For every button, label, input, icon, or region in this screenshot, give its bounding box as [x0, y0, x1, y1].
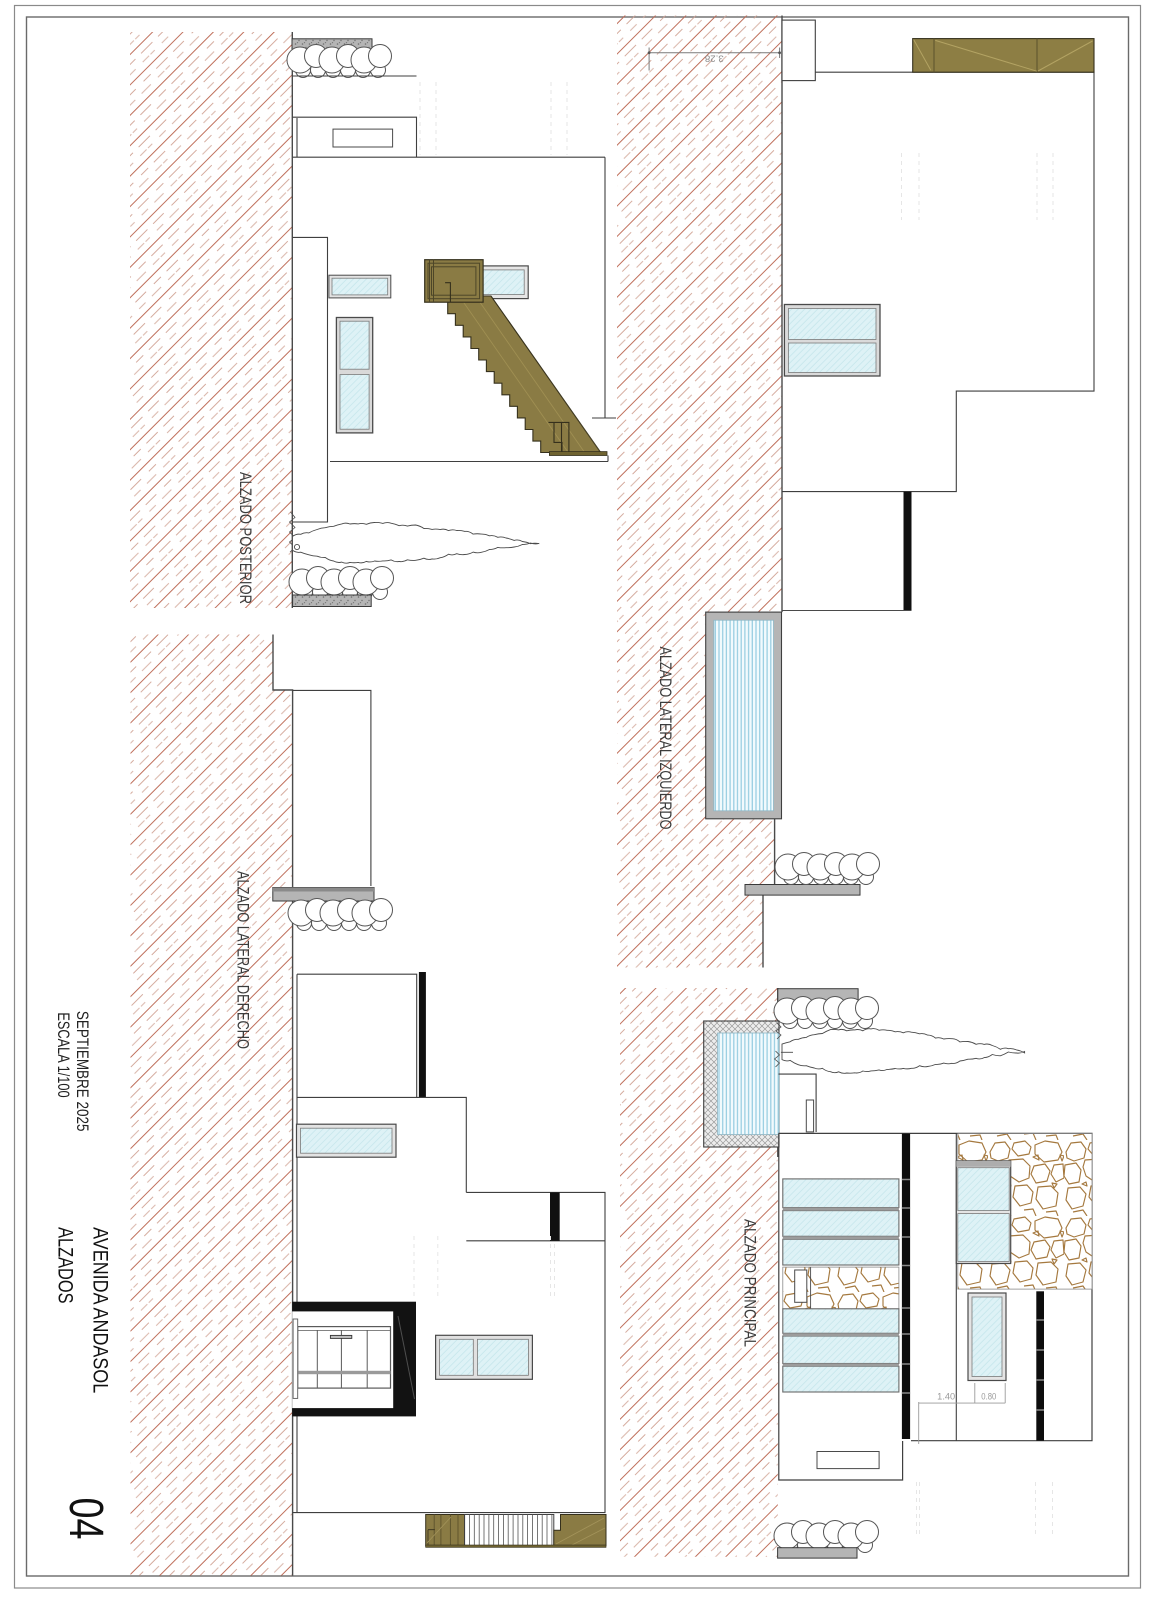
svg-text:3.28: 3.28	[705, 54, 724, 64]
svg-text:ALZADO LATERAL DERECHO: ALZADO LATERAL DERECHO	[234, 871, 253, 1049]
svg-text:ALZADO LATERAL IZQUIERDO: ALZADO LATERAL IZQUIERDO	[656, 647, 675, 830]
svg-text:1.40: 1.40	[937, 1392, 955, 1402]
svg-text:ALZADO PRINCIPAL: ALZADO PRINCIPAL	[741, 1219, 760, 1347]
svg-text:ALZADOS: ALZADOS	[54, 1227, 77, 1303]
svg-text:ESCALA 1/100: ESCALA 1/100	[54, 1012, 73, 1097]
svg-text:04: 04	[59, 1498, 112, 1540]
svg-text:SEPTIEMBRE 2025: SEPTIEMBRE 2025	[73, 1011, 92, 1132]
svg-text:ALZADO POSTERIOR: ALZADO POSTERIOR	[236, 472, 255, 604]
svg-text:0.80: 0.80	[981, 1392, 996, 1402]
svg-text:AVENIDA ANDASOL: AVENIDA ANDASOL	[89, 1227, 112, 1393]
